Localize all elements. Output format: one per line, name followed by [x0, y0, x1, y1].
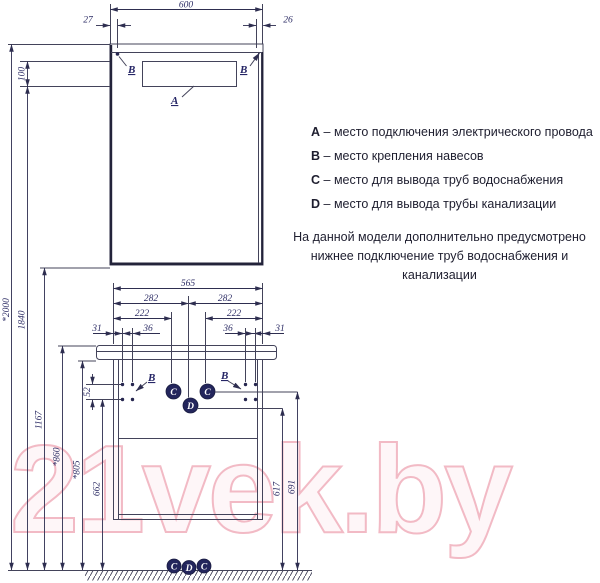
legend-desc-c: – место для вывода труб водоснабжения	[324, 173, 564, 187]
note-line-1: На данной модели дополнительно предусмот…	[279, 228, 600, 247]
dim-31-right: 31	[274, 324, 285, 334]
dim-height-805: *805	[73, 460, 83, 479]
marker-b-lower-left: В	[147, 372, 155, 384]
legend-desc-d: – место для вывода трубы канализации	[324, 197, 557, 211]
marker-c-bottom-left: C	[171, 563, 178, 573]
electric-connection-zone	[143, 62, 237, 87]
dim-height-1840: 1840	[18, 310, 28, 329]
legend-desc-b: – место крепления навесов	[324, 149, 484, 163]
legend-item-c: C – место для вывода труб водоснабжения	[311, 168, 593, 192]
mirror-cabinet: В В А	[110, 44, 263, 265]
dim-height-691: 691	[288, 480, 298, 494]
base-cabinet-dimensions: 565 282 282 222 222 31 36 36 31	[91, 279, 285, 398]
dim-offset-right-26: 26	[283, 16, 293, 26]
left-dimensions: *2000 100 1840 1167 *860 *805 662 52	[2, 45, 122, 571]
dim-height-1167: 1167	[35, 410, 45, 430]
installation-diagram-page: 21vek.by В В А	[0, 0, 600, 583]
hanger-hole	[131, 398, 134, 401]
dim-height-662: 662	[93, 482, 103, 497]
dim-width-600: 600	[179, 1, 194, 11]
dim-width-565: 565	[181, 279, 196, 289]
hanger-hole	[244, 398, 247, 401]
dim-282-right: 282	[218, 294, 233, 304]
legend-key-c: C	[311, 173, 320, 187]
top-dimensions: 600 27 26	[83, 1, 293, 49]
dim-31-left: 31	[91, 324, 102, 334]
legend-key-b: B	[311, 149, 320, 163]
hanger-hole	[254, 383, 257, 386]
dim-36-right: 36	[222, 324, 233, 334]
legend-key-d: D	[311, 197, 320, 211]
marker-b-top-right: В	[239, 64, 247, 76]
dim-222-left: 222	[135, 309, 150, 319]
hanger-hole	[244, 383, 247, 386]
dim-222-right: 222	[227, 309, 242, 319]
legend-desc-a: – место подключения электрического прово…	[324, 125, 593, 139]
marker-c-left: C	[170, 388, 177, 398]
right-dimensions: 617 691	[198, 392, 298, 570]
legend: A – место подключения электрического про…	[311, 120, 593, 216]
legend-item-b: B – место крепления навесов	[311, 144, 593, 168]
mirror-cabinet-outline	[110, 44, 263, 265]
dim-36-left: 36	[142, 324, 153, 334]
dim-spacing-52: 52	[83, 387, 93, 397]
dim-offset-left-27: 27	[83, 16, 94, 26]
legend-item-a: A – место подключения электрического про…	[311, 120, 593, 144]
marker-c-right: C	[204, 388, 211, 398]
marker-c-bottom-right: C	[201, 563, 208, 573]
hanger-hole	[254, 398, 257, 401]
marker-b-lower-right: В	[220, 370, 228, 382]
marker-d: D	[186, 402, 194, 412]
hanger-hole	[121, 398, 124, 401]
dim-height-100: 100	[18, 67, 28, 82]
technical-drawing: В В А 600 27 26 *2000	[0, 0, 600, 583]
marker-a: А	[170, 95, 178, 107]
dim-height-617: 617	[273, 481, 283, 497]
marker-d-bottom: D	[185, 564, 193, 574]
dim-282-left: 282	[144, 294, 159, 304]
note-line-2: нижнее подключение труб водоснабжения и …	[279, 247, 600, 285]
base-cabinet: В В C C D	[97, 346, 277, 521]
hanger-hole	[131, 383, 134, 386]
dim-height-2000: *2000	[2, 298, 12, 322]
legend-item-d: D – место для вывода трубы канализации	[311, 192, 593, 216]
mount-point-top-left	[116, 52, 120, 56]
dim-height-860: *860	[53, 447, 63, 466]
countertop	[97, 346, 277, 360]
floor-hatch	[85, 571, 312, 581]
floor: C D C	[8, 559, 312, 581]
marker-b-top-left: В	[127, 64, 135, 76]
note: На данной модели дополнительно предусмот…	[279, 228, 600, 285]
hanger-hole	[121, 383, 124, 386]
legend-key-a: A	[311, 125, 320, 139]
